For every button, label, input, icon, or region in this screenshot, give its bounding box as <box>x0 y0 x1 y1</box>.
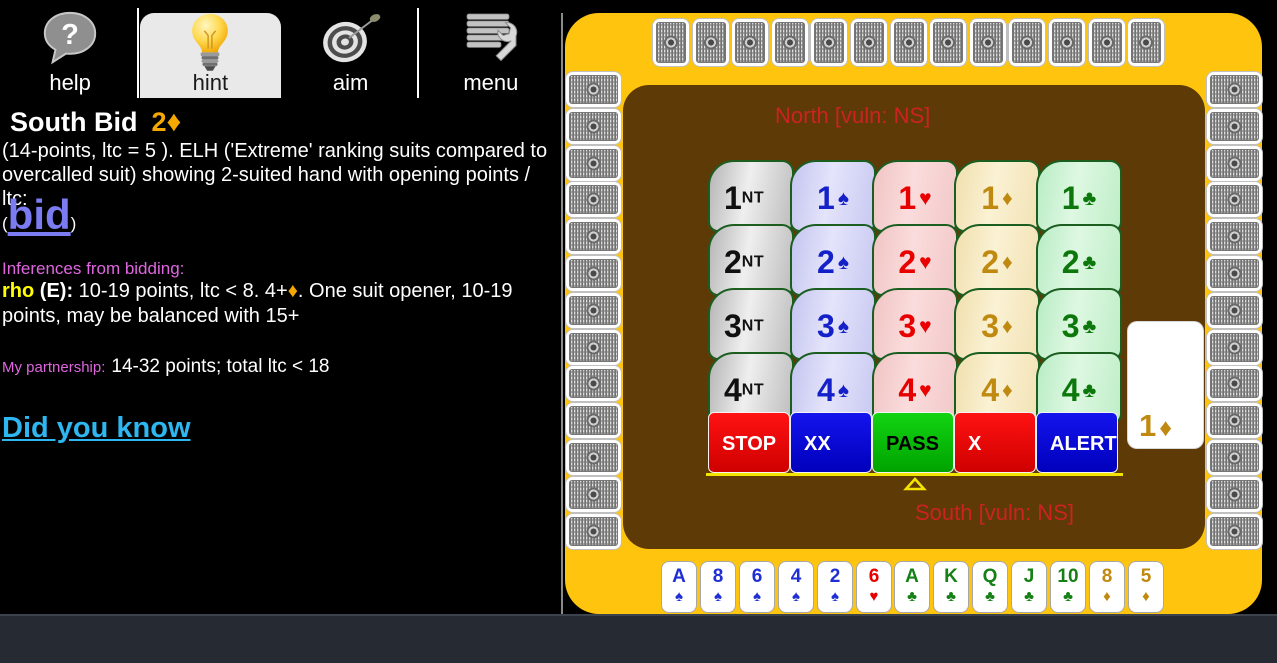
bid-card-2-diamond[interactable]: 2♦ <box>954 224 1040 296</box>
dartboard-icon <box>281 8 421 70</box>
card-back-east <box>1207 366 1262 401</box>
card-back-north <box>811 19 847 66</box>
card-back-north <box>1049 19 1085 66</box>
bid-card-2-club[interactable]: 2♣ <box>1036 224 1122 296</box>
bid-card-2-nt[interactable]: 2NT <box>708 224 794 296</box>
partnership-inference: My partnership:14-32 points; total ltc <… <box>2 356 330 378</box>
hand-card-6-heart[interactable]: 6♥ <box>856 561 892 613</box>
bid-link[interactable]: bid <box>8 191 71 238</box>
card-back-east <box>1207 219 1262 254</box>
hand-card-5-diamond[interactable]: 5♦ <box>1128 561 1164 613</box>
card-back-north <box>851 19 887 66</box>
card-back-west <box>566 256 621 291</box>
bid-card-1-nt[interactable]: 1NT <box>708 160 794 232</box>
card-back-west <box>566 72 621 107</box>
current-bid-card: 1♦ <box>1128 322 1203 448</box>
menu-button[interactable]: menu <box>421 0 561 98</box>
action-button-stop[interactable]: STOP <box>708 412 790 473</box>
panel-title-text: South Bid <box>10 107 137 137</box>
hand-card-6-spade[interactable]: 6♠ <box>739 561 775 613</box>
menu-wrench-icon <box>421 8 561 70</box>
card-back-west <box>566 366 621 401</box>
bid-card-1-diamond[interactable]: 1♦ <box>954 160 1040 232</box>
aim-button-label: aim <box>281 70 421 96</box>
bidding-box-underline <box>706 473 1123 476</box>
card-back-west <box>566 440 621 475</box>
bid-card-1-spade[interactable]: 1♠ <box>790 160 876 232</box>
rho-seat: (E): <box>40 280 73 302</box>
hand-card-4-spade[interactable]: 4♠ <box>778 561 814 613</box>
hint-button[interactable]: hint <box>140 13 280 98</box>
bid-card-3-diamond[interactable]: 3♦ <box>954 288 1040 360</box>
action-button-x[interactable]: X <box>954 412 1036 473</box>
hand-card-A-club[interactable]: A♣ <box>894 561 930 613</box>
bid-suit-diamond-icon: ♦ <box>167 106 182 138</box>
card-back-north <box>693 19 729 66</box>
app-window: ? help <box>0 0 1277 663</box>
current-bid-diamond-icon: ♦ <box>1159 414 1172 442</box>
card-back-east <box>1207 403 1262 438</box>
bid-info-panel: South Bid2♦ (14-points, ltc = 5 ). ELH (… <box>0 98 561 614</box>
partnership-value: 14-32 points; total ltc < 18 <box>111 356 329 377</box>
hand-card-10-club[interactable]: 10♣ <box>1050 561 1086 613</box>
card-back-east <box>1207 72 1262 107</box>
card-back-east <box>1207 293 1262 328</box>
hand-card-A-spade[interactable]: A♠ <box>661 561 697 613</box>
card-back-north <box>930 19 966 66</box>
help-button[interactable]: ? help <box>0 0 140 98</box>
bid-description: (14-points, ltc = 5 ). ELH ('Extreme' ra… <box>2 139 561 211</box>
toolbar-separator <box>417 8 419 98</box>
toolbar-separator <box>137 8 139 98</box>
action-button-xx[interactable]: XX <box>790 412 872 473</box>
svg-text:?: ? <box>61 19 79 51</box>
card-back-east <box>1207 256 1262 291</box>
card-back-west <box>566 330 621 365</box>
card-back-north <box>1009 19 1045 66</box>
panel-title: South Bid2♦ <box>10 106 181 139</box>
card-back-north <box>1089 19 1125 66</box>
menu-button-label: menu <box>421 70 561 96</box>
bid-card-3-club[interactable]: 3♣ <box>1036 288 1122 360</box>
rho-text-before: 10-19 points, ltc < 8. 4+ <box>79 280 288 302</box>
card-back-east <box>1207 182 1262 217</box>
hand-card-2-spade[interactable]: 2♠ <box>817 561 853 613</box>
bid-card-1-club[interactable]: 1♣ <box>1036 160 1122 232</box>
bid-level: 2 <box>151 107 166 137</box>
bid-card-3-spade[interactable]: 3♠ <box>790 288 876 360</box>
card-back-north <box>732 19 768 66</box>
north-vulnerability-label: North [vuln: NS] <box>775 103 930 129</box>
rho-inference: rho (E): 10-19 points, ltc < 8. 4+♦. One… <box>2 279 514 329</box>
current-bid-level: 1 <box>1139 408 1156 443</box>
close-paren: ) <box>71 214 77 233</box>
card-back-east <box>1207 514 1262 549</box>
card-back-west <box>566 514 621 549</box>
bridge-table-panel: North [vuln: NS] South [vuln: NS] 1♦ 1NT… <box>565 13 1262 614</box>
card-back-east <box>1207 109 1262 144</box>
toolbar: ? help <box>0 0 561 98</box>
card-back-west <box>566 293 621 328</box>
card-back-east <box>1207 477 1262 512</box>
system-navigation-bar <box>0 614 1277 663</box>
card-back-east <box>1207 146 1262 181</box>
action-button-pass[interactable]: PASS <box>872 412 954 473</box>
hint-button-label: hint <box>140 70 280 96</box>
inferences-heading: Inferences from bidding: <box>2 259 184 279</box>
card-back-west <box>566 477 621 512</box>
bid-position-arrow-icon <box>903 477 927 496</box>
card-back-north <box>1128 19 1164 66</box>
card-back-east <box>1207 440 1262 475</box>
card-back-west <box>566 109 621 144</box>
card-back-west <box>566 182 621 217</box>
hand-card-J-club[interactable]: J♣ <box>1011 561 1047 613</box>
aim-button[interactable]: aim <box>281 0 421 98</box>
south-vulnerability-label: South [vuln: NS] <box>915 500 1074 526</box>
bid-card-2-heart[interactable]: 2♥ <box>872 224 958 296</box>
card-back-west <box>566 219 621 254</box>
action-button-alert[interactable]: ALERT <box>1036 412 1118 473</box>
hand-card-Q-club[interactable]: Q♣ <box>972 561 1008 613</box>
partnership-label: My partnership: <box>2 359 105 376</box>
bid-card-1-heart[interactable]: 1♥ <box>872 160 958 232</box>
hand-card-8-diamond[interactable]: 8♦ <box>1089 561 1125 613</box>
did-you-know-link[interactable]: Did you know <box>2 412 191 445</box>
card-back-west <box>566 146 621 181</box>
bid-card-3-nt[interactable]: 3NT <box>708 288 794 360</box>
rho-name: rho <box>2 280 34 302</box>
card-back-east <box>1207 330 1262 365</box>
bid-link-row: (bid) <box>2 191 76 239</box>
help-button-label: help <box>0 70 140 96</box>
rho-diamond-icon: ♦ <box>288 280 298 302</box>
card-back-west <box>566 403 621 438</box>
card-back-north <box>653 19 689 66</box>
bid-card-3-heart[interactable]: 3♥ <box>872 288 958 360</box>
bid-card-2-spade[interactable]: 2♠ <box>790 224 876 296</box>
card-back-north <box>772 19 808 66</box>
card-back-north <box>891 19 927 66</box>
hand-card-K-club[interactable]: K♣ <box>933 561 969 613</box>
hand-card-8-spade[interactable]: 8♠ <box>700 561 736 613</box>
card-back-north <box>970 19 1006 66</box>
panel-divider <box>561 13 563 614</box>
lightbulb-icon <box>140 11 280 73</box>
help-bubble-icon: ? <box>0 8 140 70</box>
